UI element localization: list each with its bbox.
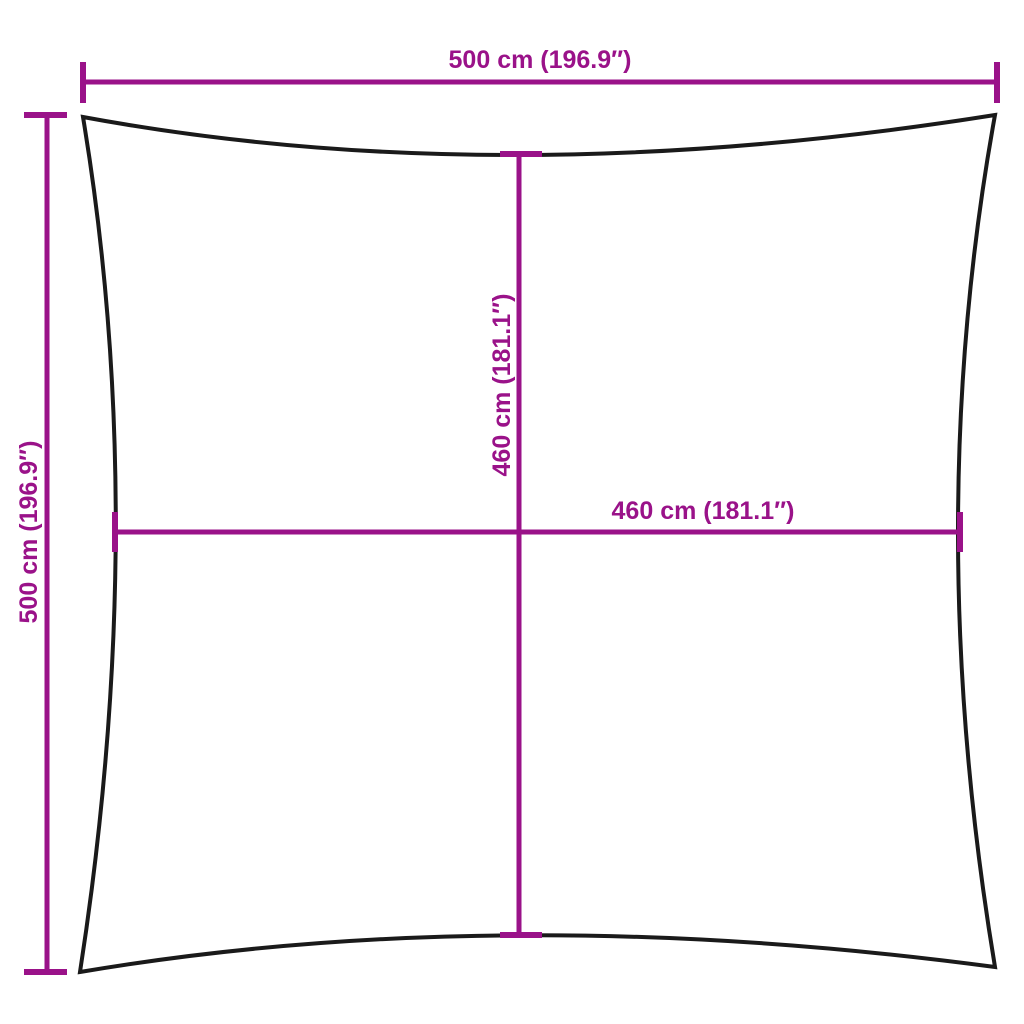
dimension-left: 500 cm (196.9″) (15, 115, 67, 972)
dimension-diagram-canvas: 500 cm (196.9″) 500 cm (196.9″) 460 cm (… (0, 0, 1024, 1024)
dimension-top: 500 cm (196.9″) (83, 46, 997, 103)
dimension-inner-horizontal: 460 cm (181.1″) (115, 497, 960, 552)
dimension-inner-horizontal-label: 460 cm (181.1″) (612, 497, 795, 525)
dimension-left-label: 500 cm (196.9″) (15, 441, 43, 624)
sail-outline (80, 115, 995, 972)
dimension-diagram: 500 cm (196.9″) 500 cm (196.9″) 460 cm (… (0, 0, 1024, 1024)
dimension-top-label: 500 cm (196.9″) (449, 46, 632, 74)
dimension-inner-vertical-label: 460 cm (181.1″) (488, 294, 516, 477)
dimension-inner-vertical: 460 cm (181.1″) (488, 154, 542, 935)
